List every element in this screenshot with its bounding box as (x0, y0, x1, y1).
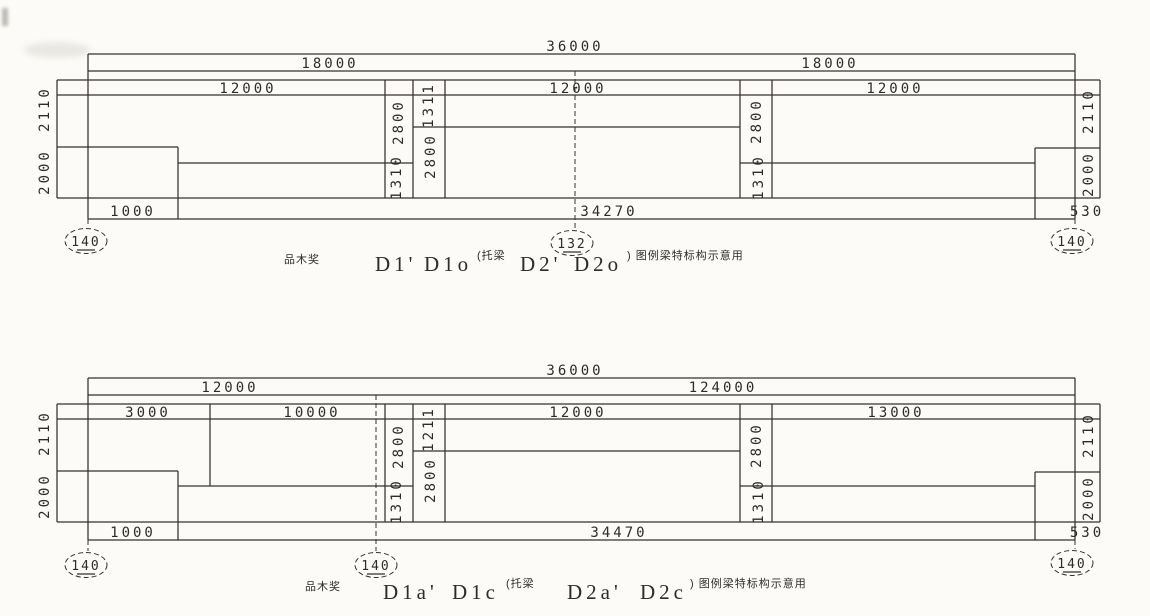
beam-elevations-svg: 36000 18000 18000 12000 12000 12000 2110… (0, 0, 1150, 616)
dim-overall-span: 36000 (546, 363, 603, 379)
dim-height: 2800 (749, 422, 765, 468)
dim-height: 1211 (421, 406, 437, 452)
dim-span: 10000 (283, 405, 340, 421)
axis-bubble-label: 140 (361, 559, 390, 574)
dim-height: 1311 (421, 82, 437, 128)
caption-note-open: (托梁 (506, 576, 535, 590)
dim-height: 1310 (389, 478, 405, 524)
dim-height: 2800 (391, 423, 407, 469)
axis-bubble-label: 140 (1057, 235, 1086, 250)
dim-height: 2000 (37, 473, 53, 519)
dim-height: 2110 (1081, 88, 1097, 134)
caption-note-open: (托梁 (477, 248, 506, 262)
dim-height: 2110 (1081, 412, 1097, 458)
caption-note-close: ) 图例梁特标构示意用 (690, 576, 807, 590)
axis-bubble-label: 132 (557, 237, 586, 252)
dim-height: 2800 (749, 98, 765, 144)
axis-bubble-label: 140 (1057, 557, 1086, 572)
dim-overall-span: 36000 (546, 39, 603, 55)
beam-id-label: D1a' (383, 580, 438, 604)
beam-id-label: D2a' (567, 580, 622, 604)
beam-id-label: D2' (520, 252, 561, 276)
beam-id-label: D2o (574, 252, 622, 276)
dim-span: 124000 (689, 380, 758, 396)
beam-elevation-top: 36000 18000 18000 12000 12000 12000 2110… (37, 39, 1104, 276)
dim-height: 2110 (37, 86, 53, 132)
dim-height: 1310 (389, 154, 405, 200)
dim-span: 1000 (110, 204, 156, 220)
caption-prefix: 品木奖 (284, 252, 320, 266)
dim-height: 2000 (1081, 151, 1097, 197)
beam-id-label: D2c (640, 580, 687, 604)
dim-span: 530 (1070, 204, 1104, 220)
dim-span: 3000 (125, 405, 171, 421)
dim-span: 12000 (866, 81, 923, 97)
beam-id-label: D1' (375, 252, 416, 276)
dim-span: 13000 (867, 405, 924, 421)
beam-id-label: D1c (452, 580, 499, 604)
dim-span: 18000 (801, 56, 858, 72)
dim-height: 1310 (751, 478, 767, 524)
dim-height: 2800 (423, 133, 439, 179)
caption-note-close: ) 图例梁特标构示意用 (627, 248, 744, 262)
caption-prefix: 品木奖 (305, 579, 341, 593)
dim-height: 1310 (751, 154, 767, 200)
dim-height: 2000 (1081, 475, 1097, 521)
drawing-sheet: 36000 18000 18000 12000 12000 12000 2110… (0, 0, 1150, 616)
dim-height: 2800 (391, 99, 407, 145)
dim-height: 2800 (423, 457, 439, 503)
dim-span: 1000 (110, 525, 156, 541)
dim-span: 530 (1070, 525, 1104, 541)
dim-span: 12000 (549, 405, 606, 421)
beam-id-label: D1o (424, 252, 472, 276)
dim-height: 2000 (37, 149, 53, 195)
dim-height: 2110 (37, 410, 53, 456)
axis-bubble-label: 140 (71, 235, 100, 250)
dim-span: 34470 (590, 525, 647, 541)
dim-span: 12000 (219, 81, 276, 97)
dim-span: 12000 (549, 81, 606, 97)
dim-span: 34270 (580, 204, 637, 220)
beam-elevation-bottom: 36000 12000 124000 3000 10000 12000 1300… (37, 363, 1104, 604)
dim-span: 18000 (301, 56, 358, 72)
axis-bubble-label: 140 (71, 559, 100, 574)
dim-span: 12000 (201, 380, 258, 396)
